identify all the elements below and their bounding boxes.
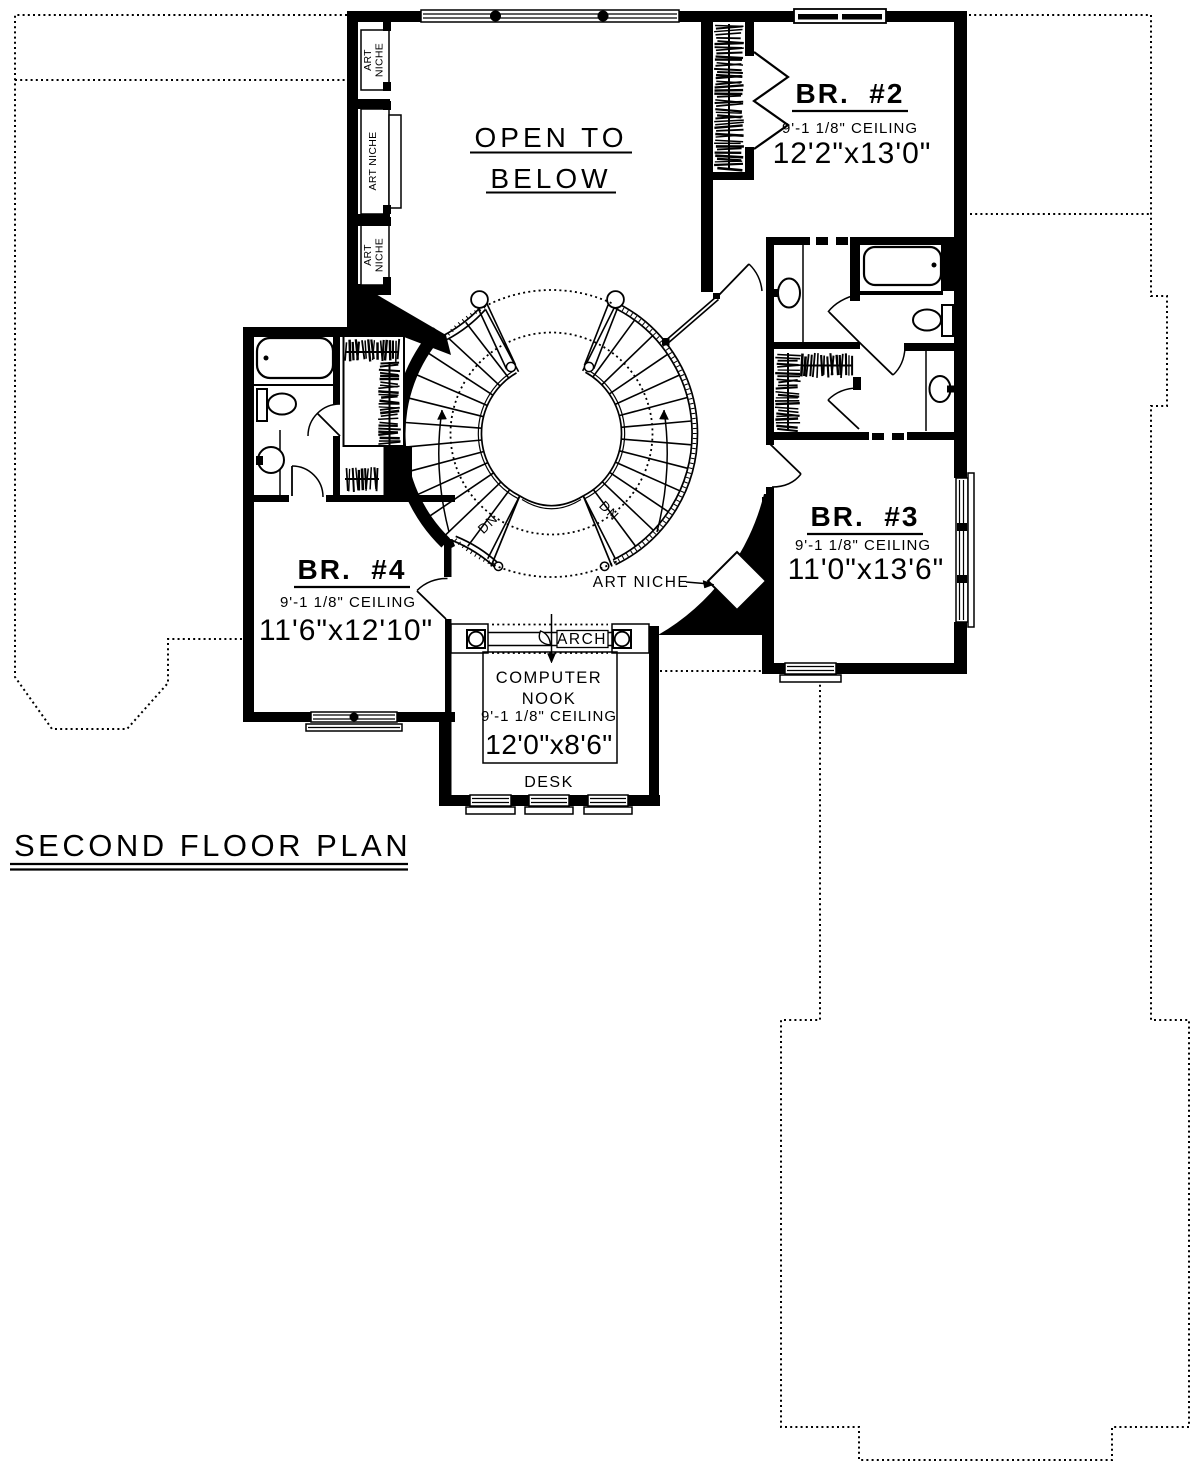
svg-text:9'-1 1/8" CEILING: 9'-1 1/8" CEILING	[782, 120, 918, 137]
svg-text:BR. #2: BR. #2	[796, 78, 905, 109]
svg-text:SECOND FLOOR PLAN: SECOND FLOOR PLAN	[14, 828, 411, 863]
svg-text:11'6"x12'10": 11'6"x12'10"	[259, 614, 433, 647]
svg-text:11'0"x13'6": 11'0"x13'6"	[788, 553, 945, 586]
svg-text:9'-1 1/8" CEILING: 9'-1 1/8" CEILING	[795, 537, 931, 554]
svg-text:ARCH: ARCH	[557, 631, 607, 648]
svg-text:9'-1 1/8" CEILING: 9'-1 1/8" CEILING	[280, 594, 416, 611]
svg-text:BELOW: BELOW	[490, 163, 611, 194]
svg-text:OPEN TO: OPEN TO	[474, 122, 627, 153]
svg-text:9'-1 1/8" CEILING: 9'-1 1/8" CEILING	[481, 708, 617, 725]
svg-text:ART: ART	[362, 49, 374, 71]
svg-text:COMPUTER: COMPUTER	[496, 669, 602, 687]
svg-text:NOOK: NOOK	[522, 690, 577, 708]
svg-text:NICHE: NICHE	[374, 43, 386, 77]
svg-text:12'0"x8'6": 12'0"x8'6"	[485, 729, 612, 760]
svg-text:ART NICHE: ART NICHE	[593, 574, 689, 591]
svg-text:BR. #3: BR. #3	[811, 501, 920, 532]
svg-text:BR. #4: BR. #4	[298, 554, 407, 585]
svg-text:ART: ART	[362, 244, 374, 266]
svg-text:NICHE: NICHE	[374, 238, 386, 272]
svg-text:12'2"x13'0": 12'2"x13'0"	[773, 137, 932, 170]
svg-text:ART NICHE: ART NICHE	[367, 132, 379, 191]
svg-text:DESK: DESK	[524, 774, 574, 791]
